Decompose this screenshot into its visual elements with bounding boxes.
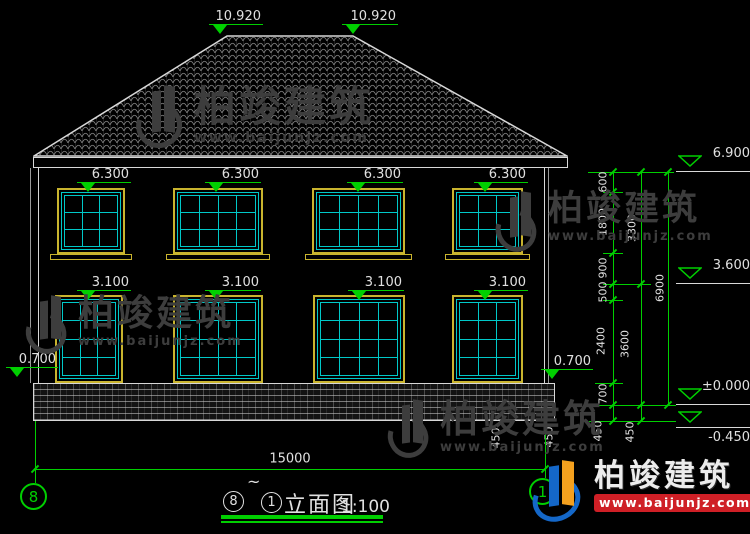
elevation-value: 6.300	[222, 167, 259, 182]
watermark-right: 柏竣建筑 www.baijunjz.com	[496, 192, 713, 252]
watermark-brand: 柏竣建筑	[548, 192, 713, 227]
elevation-drawing-canvas: 10.920 10.920 6.300 6.300 6.300 6.300 3.…	[0, 0, 750, 534]
elevation-value: 0.700	[19, 352, 56, 367]
elevation-value: 3.100	[365, 275, 402, 290]
elevation-value: 6.300	[489, 167, 526, 182]
window-elevation-marker: 3.100	[348, 275, 404, 291]
watermark-roof: 柏竣建筑 www.baijunjz.com	[136, 86, 374, 148]
watermark-brand: 柏竣建筑	[440, 400, 605, 438]
dim-value: 6900	[654, 274, 667, 302]
watermark-site: www.baijunjz.com	[440, 440, 605, 455]
window-lower-4	[452, 295, 523, 383]
dim-value: 3600	[619, 330, 632, 358]
grid-number: 8	[229, 494, 237, 509]
window-sill	[50, 254, 132, 260]
window-elevation-marker: 6.300	[205, 167, 261, 183]
window-sill	[305, 254, 412, 260]
ridge-elevation-marker: 10.920	[342, 9, 398, 25]
level-marker-ground: ±0.000	[676, 379, 750, 405]
window-upper-3	[312, 188, 405, 254]
elevation-value: 0.700	[554, 354, 591, 369]
window-upper-2	[173, 188, 263, 254]
title-underline-thin	[221, 521, 383, 523]
window-sill	[445, 254, 530, 260]
grid-bubble-8: 8	[20, 483, 47, 510]
elevation-value: 3.100	[92, 275, 129, 290]
plinth-elevation-marker-left: 0.700	[6, 352, 58, 368]
window-elevation-marker: 3.100	[205, 275, 261, 291]
elevation-value: 3.100	[222, 275, 259, 290]
window-elevation-marker: 3.100	[77, 275, 131, 291]
elevation-value: 3.600	[713, 258, 750, 273]
window-elevation-marker: 6.300	[347, 167, 403, 183]
title-grid-to: 1	[261, 492, 282, 513]
elevation-value: 3.100	[489, 275, 526, 290]
elevation-value: -0.450	[708, 430, 750, 445]
overall-width-value: 15000	[269, 452, 310, 467]
elevation-value: 6.300	[92, 167, 129, 182]
ridge-elevation-marker: 10.920	[209, 9, 263, 25]
window-elevation-marker: 6.300	[77, 167, 131, 183]
grid-extension-line	[35, 421, 36, 483]
window-sill	[166, 254, 270, 260]
plinth-elevation-marker-right: 0.700	[541, 354, 593, 370]
overall-dimension-line	[35, 469, 545, 470]
brand-logo-icon	[26, 296, 72, 354]
title-tilde: ~	[247, 472, 260, 491]
dim-value: 2400	[595, 327, 608, 355]
watermark-brand: 柏竣建筑	[194, 86, 374, 128]
dim-value: 500	[597, 282, 610, 303]
company-website: www.baijunjz.com	[594, 494, 750, 512]
grid-number: 1	[267, 495, 275, 510]
watermark-site: www.baijunjz.com	[548, 229, 713, 244]
elevation-value: 10.920	[351, 9, 397, 24]
elevation-value: 6.900	[713, 146, 750, 161]
brand-logo-icon	[388, 400, 434, 458]
elevation-value: 10.920	[216, 9, 262, 24]
title-underline-thick	[221, 515, 383, 519]
company-name: 柏竣建筑	[594, 461, 750, 492]
drawing-scale: 1:100	[341, 497, 390, 517]
company-logo: 柏竣建筑 www.baijunjz.com	[532, 461, 750, 521]
level-marker-second-floor: 3.600	[676, 258, 750, 284]
window-lower-3	[313, 295, 405, 383]
watermark-left: 柏竣建筑 www.baijunjz.com	[26, 296, 243, 354]
dim-value: 900	[597, 258, 610, 279]
brand-logo-icon	[136, 86, 188, 148]
company-logo-icon	[532, 461, 588, 521]
level-marker-eave: 6.900	[676, 146, 750, 172]
watermark-brand: 柏竣建筑	[78, 296, 243, 332]
window-elevation-marker: 3.100	[474, 275, 528, 291]
grid-number: 8	[29, 488, 39, 506]
elevation-value: ±0.000	[702, 379, 750, 394]
window-elevation-marker: 6.300	[474, 167, 528, 183]
window-upper-1	[57, 188, 125, 254]
level-marker-below-ground: -0.450	[676, 414, 750, 428]
watermark-site: www.baijunjz.com	[78, 334, 243, 349]
dim-value: 450	[624, 422, 637, 443]
title-grid-from: 8	[223, 491, 244, 512]
watermark-site: www.baijunjz.com	[194, 130, 374, 146]
brand-logo-icon	[496, 192, 542, 252]
elevation-value: 6.300	[364, 167, 401, 182]
watermark-bottom: 柏竣建筑 www.baijunjz.com	[388, 400, 605, 458]
